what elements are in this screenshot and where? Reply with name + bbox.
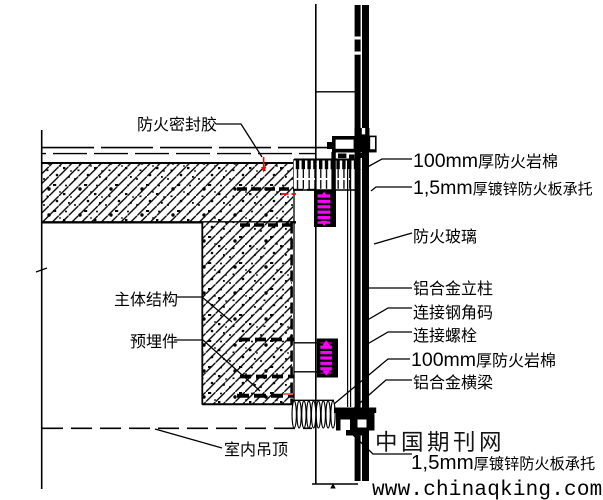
svg-text:www.chinaqking.com: www.chinaqking.com: [372, 479, 602, 500]
svg-text:铝合金立柱: 铝合金立柱: [413, 280, 493, 298]
svg-text:100mm厚防火岩棉: 100mm厚防火岩棉: [413, 150, 558, 172]
svg-text:主体结构: 主体结构: [114, 291, 178, 309]
svg-text:防火玻璃: 防火玻璃: [413, 228, 477, 246]
svg-text:连接钢角码: 连接钢角码: [413, 304, 493, 322]
svg-text:室内吊顶: 室内吊顶: [224, 441, 288, 459]
svg-text:100mm厚防火岩棉: 100mm厚防火岩棉: [411, 349, 556, 371]
svg-text:防火密封胶: 防火密封胶: [137, 116, 217, 134]
svg-text:铝合金横梁: 铝合金横梁: [413, 374, 493, 392]
svg-text:1,5mm厚镀锌防火板承托: 1,5mm厚镀锌防火板承托: [413, 177, 593, 199]
svg-text:预埋件: 预埋件: [130, 333, 178, 351]
svg-text:连接螺栓: 连接螺栓: [413, 327, 477, 345]
